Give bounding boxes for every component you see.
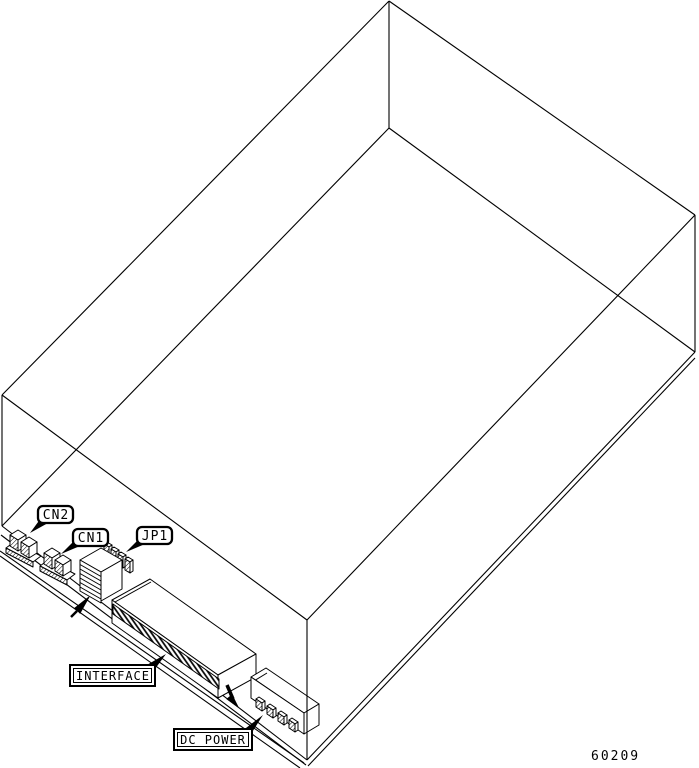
interface-edge-connector bbox=[112, 579, 256, 707]
drawing-number: 60209 bbox=[591, 749, 640, 764]
callout-label: JP1 bbox=[142, 529, 168, 544]
box-edge-bottom-front-right bbox=[307, 352, 695, 760]
box-edge-bottom-back-right bbox=[389, 128, 695, 352]
enclosure-wireframe bbox=[0, 1, 695, 768]
dc-power-connector bbox=[251, 668, 319, 734]
technical-diagram-page: CN2 CN1 JP1 INTERFACE DC POWER 60209 bbox=[0, 0, 699, 768]
interface-callout: INTERFACE bbox=[70, 654, 166, 686]
dc-power-callout: DC POWER bbox=[174, 715, 263, 750]
pin1-arrow bbox=[71, 597, 89, 617]
pin-end-arrow bbox=[227, 695, 238, 707]
box-edge-top-front-right bbox=[307, 215, 695, 620]
callout-label: DC POWER bbox=[180, 733, 246, 747]
box-edge-top-right bbox=[389, 1, 695, 215]
jp1-callout: JP1 bbox=[126, 527, 172, 552]
callout-label: CN1 bbox=[78, 531, 104, 546]
box-edge-bottom-back-left bbox=[2, 128, 389, 526]
cn1-connector bbox=[40, 548, 75, 585]
callout-label: INTERFACE bbox=[76, 669, 150, 683]
cn2-callout: CN2 bbox=[30, 506, 73, 533]
base-lip-right bbox=[308, 358, 695, 766]
technical-diagram: CN2 CN1 JP1 INTERFACE DC POWER 60209 bbox=[0, 0, 699, 768]
jumper-pin bbox=[125, 557, 133, 573]
box-edge-top-left bbox=[2, 1, 389, 395]
callout-label: CN2 bbox=[43, 508, 69, 523]
